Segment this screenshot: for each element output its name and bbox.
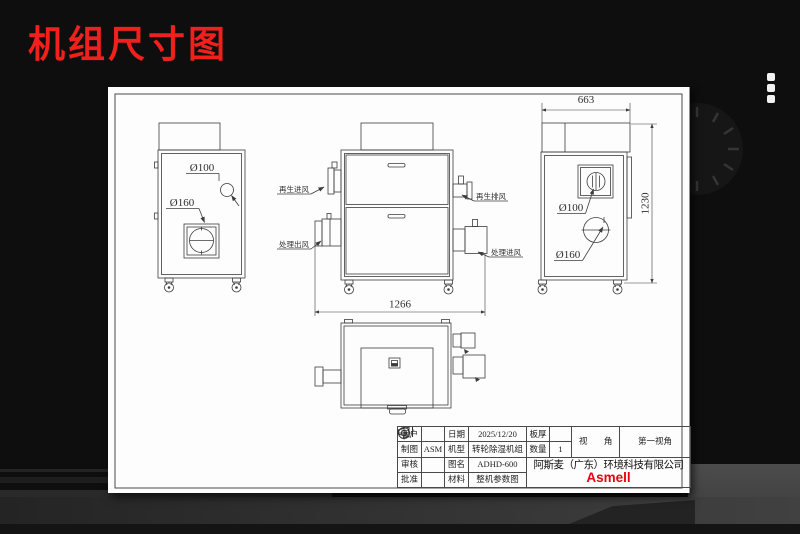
drafter-value: ASM — [422, 442, 445, 457]
date-label: 日期 — [445, 427, 469, 442]
right-view-dia160-label: Ø160 — [556, 249, 581, 261]
width-1266-dim: 1266 — [389, 299, 412, 311]
regen-exhaust-label: 再生排风 — [476, 191, 506, 201]
left-view-dia160-label: Ø160 — [170, 197, 195, 209]
process-outlet-label: 处理出风 — [279, 239, 309, 249]
quantity-value: 1 — [550, 442, 572, 457]
title-block: 客户 日期 2025/12/20 板厚 视 角 第一视角 — [397, 426, 682, 488]
quantity-label: 数量 — [527, 442, 550, 457]
checker-value — [422, 457, 445, 472]
drawing-no-label: 图名 — [445, 457, 469, 472]
material-value: 整机参数图 — [469, 472, 527, 487]
front-view — [277, 123, 523, 316]
right-view-dia100-label: Ø100 — [559, 202, 584, 214]
slide-dot — [767, 84, 775, 92]
model-label: 机型 — [445, 442, 469, 457]
material-label: 材料 — [445, 472, 469, 487]
regen-inlet-label: 再生进风 — [279, 184, 309, 194]
drafter-label: 制图 — [398, 442, 422, 457]
approver-label: 批准 — [398, 472, 422, 487]
view-angle-label: 视 角 — [572, 427, 620, 458]
slide-dot — [767, 95, 775, 103]
plan-view — [315, 320, 485, 415]
width-663-dim: 663 — [578, 94, 595, 106]
company-cell: 阿斯麦（广东）环境科技有限公司 Asmell — [527, 457, 691, 488]
thickness-label: 板厚 — [527, 427, 550, 442]
first-angle-cell: 第一视角 — [620, 427, 691, 458]
slide: 机组尺寸图 — [0, 0, 800, 534]
left-view-dia100-label: Ø100 — [190, 162, 215, 174]
checker-label: 审核 — [398, 457, 422, 472]
drawing-sheet: Ø100 Ø160 — [108, 87, 690, 493]
left-side-view — [155, 123, 246, 292]
drawing-no-value: ADHD-600 — [469, 457, 527, 472]
approver-value — [422, 472, 445, 487]
customer-value — [422, 427, 445, 442]
date-value: 2025/12/20 — [469, 427, 527, 442]
thickness-value — [550, 427, 572, 442]
brand-logo: Asmell — [527, 471, 690, 485]
slide-dot — [767, 73, 775, 81]
model-value: 转轮除湿机组 — [469, 442, 527, 457]
height-1230-dim: 1230 — [640, 192, 652, 215]
desk-front-edge — [0, 524, 800, 534]
first-angle-value: 第一视角 — [638, 437, 672, 446]
page-title: 机组尺寸图 — [28, 14, 228, 68]
process-inlet-label: 处理进风 — [491, 247, 521, 257]
